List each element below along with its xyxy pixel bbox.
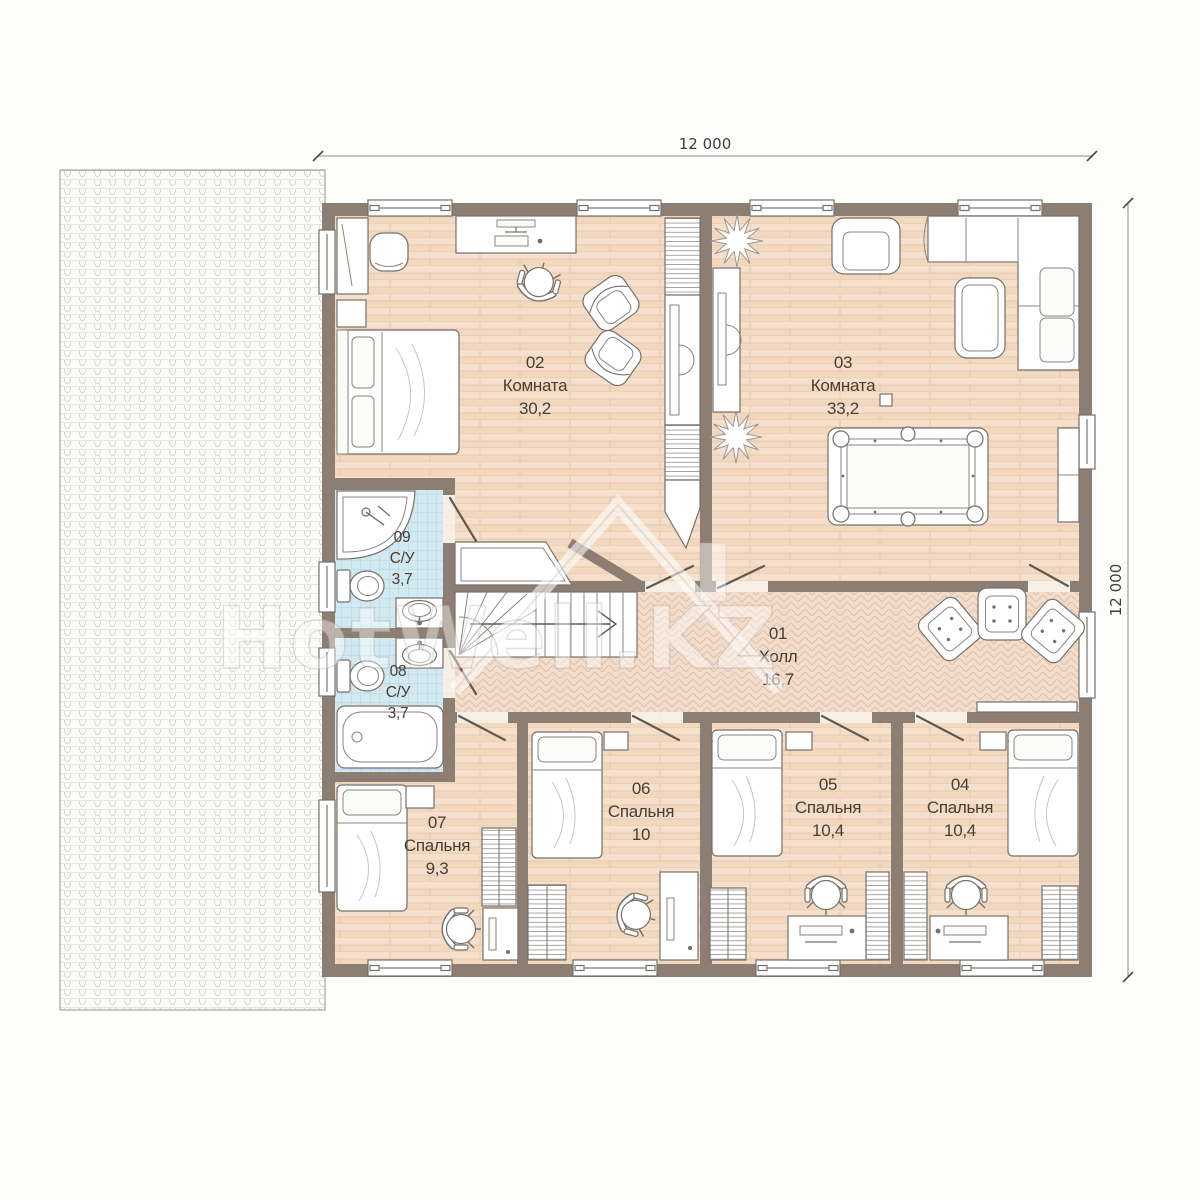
room-area: 10,4 (944, 821, 976, 840)
window (756, 960, 840, 976)
armchair (832, 218, 900, 274)
stool (370, 233, 408, 271)
cabinet (1058, 428, 1079, 522)
nightstand (604, 732, 628, 750)
desk (660, 872, 698, 960)
nightstand (406, 786, 434, 808)
room-number: 05 (819, 775, 837, 794)
sink (396, 598, 443, 628)
desk (930, 916, 1008, 960)
toilet (337, 570, 384, 602)
room-number: 01 (769, 624, 787, 643)
wardrobe (710, 888, 746, 960)
dimension-top: 12 000 (313, 135, 1097, 161)
nightstand (980, 732, 1006, 750)
tv-stand (713, 268, 741, 412)
room-name: Комната (503, 376, 568, 395)
room-number: 07 (428, 813, 446, 832)
dimension-height-label: 12 000 (1107, 564, 1125, 617)
window (1079, 415, 1095, 469)
room-number: 09 (394, 529, 411, 546)
desk (788, 916, 866, 960)
room-number: 02 (526, 353, 544, 372)
wardrobe (482, 828, 516, 906)
wardrobe (528, 885, 566, 960)
desk (483, 908, 518, 960)
dimension-width-label: 12 000 (679, 135, 732, 153)
bed (1008, 730, 1078, 856)
room-area: 9,3 (426, 859, 449, 878)
dimension-right: 12 000 (1107, 198, 1133, 982)
window (368, 960, 452, 976)
wardrobe (1042, 886, 1078, 960)
bed (712, 730, 782, 856)
room-area: 33,2 (827, 399, 859, 418)
window (319, 648, 335, 696)
room-name: Комната (811, 376, 876, 395)
window (319, 800, 335, 892)
window (573, 960, 657, 976)
room-number: 04 (951, 775, 969, 794)
wardrobe-tv-unit (665, 218, 700, 548)
vanity-table (337, 218, 368, 294)
room-name: С/У (386, 684, 411, 701)
room-name: Спальня (927, 798, 993, 817)
room-area: 3,7 (392, 571, 413, 588)
floor-plan-page: 01 Холл 16,7 02 Комната 30,2 03 Комната … (0, 0, 1200, 1200)
roof-terrace (60, 170, 325, 1010)
shelving (904, 872, 927, 960)
console-table (977, 702, 1077, 712)
bed (337, 785, 407, 911)
room-number: 08 (390, 663, 407, 680)
bed (532, 732, 602, 858)
room-number: 03 (834, 353, 852, 372)
room-name: Спальня (608, 802, 674, 821)
room-area: 16,7 (762, 670, 794, 689)
window (319, 562, 335, 612)
shelving (866, 872, 889, 960)
room-area: 10 (632, 825, 650, 844)
room-area: 3,7 (388, 705, 409, 722)
room-area: 10,4 (812, 821, 844, 840)
room-name: Холл (759, 647, 798, 666)
window (750, 200, 834, 216)
billiard-table (828, 427, 988, 526)
hall-chair (978, 588, 1026, 640)
room-name: С/У (390, 550, 415, 567)
room-name: Спальня (404, 836, 470, 855)
wall-switch (880, 394, 892, 406)
staircase (455, 592, 637, 657)
room-number: 06 (632, 779, 650, 798)
window (319, 230, 335, 294)
floor-plan-svg: 01 Холл 16,7 02 Комната 30,2 03 Комната … (0, 0, 1200, 1200)
window (958, 200, 1042, 216)
room-name: Спальня (795, 798, 861, 817)
window (960, 960, 1044, 976)
desk (456, 216, 576, 253)
toilet (337, 660, 384, 692)
coffee-table (955, 278, 1005, 358)
nightstand (786, 732, 812, 750)
window (368, 200, 452, 216)
window (577, 200, 661, 216)
room-area: 30,2 (519, 399, 551, 418)
